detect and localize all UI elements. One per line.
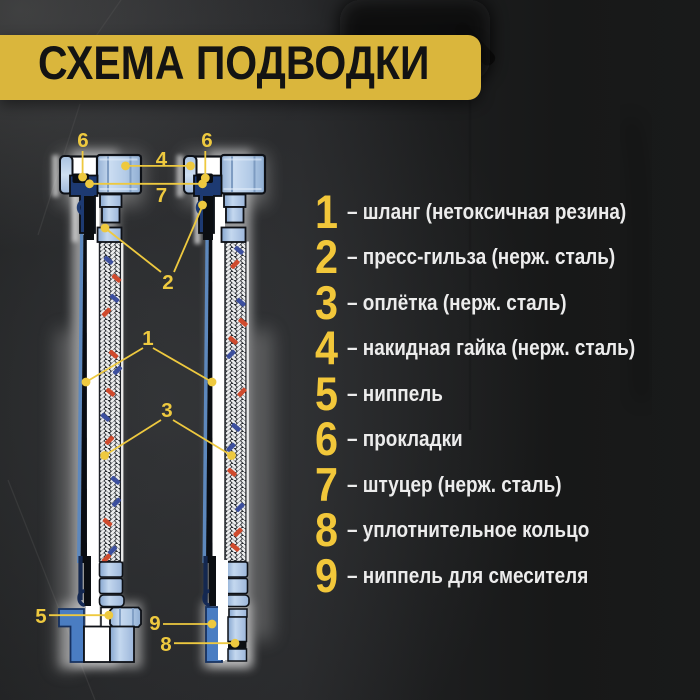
svg-text:9: 9 [149,612,160,635]
svg-text:4: 4 [156,148,168,171]
svg-text:3: 3 [161,399,172,422]
svg-text:6: 6 [201,129,212,152]
svg-text:8: 8 [160,633,171,656]
svg-text:1: 1 [142,327,153,350]
svg-text:2: 2 [162,271,173,294]
svg-text:6: 6 [77,129,88,152]
svg-text:5: 5 [35,605,46,628]
svg-text:7: 7 [156,184,167,207]
